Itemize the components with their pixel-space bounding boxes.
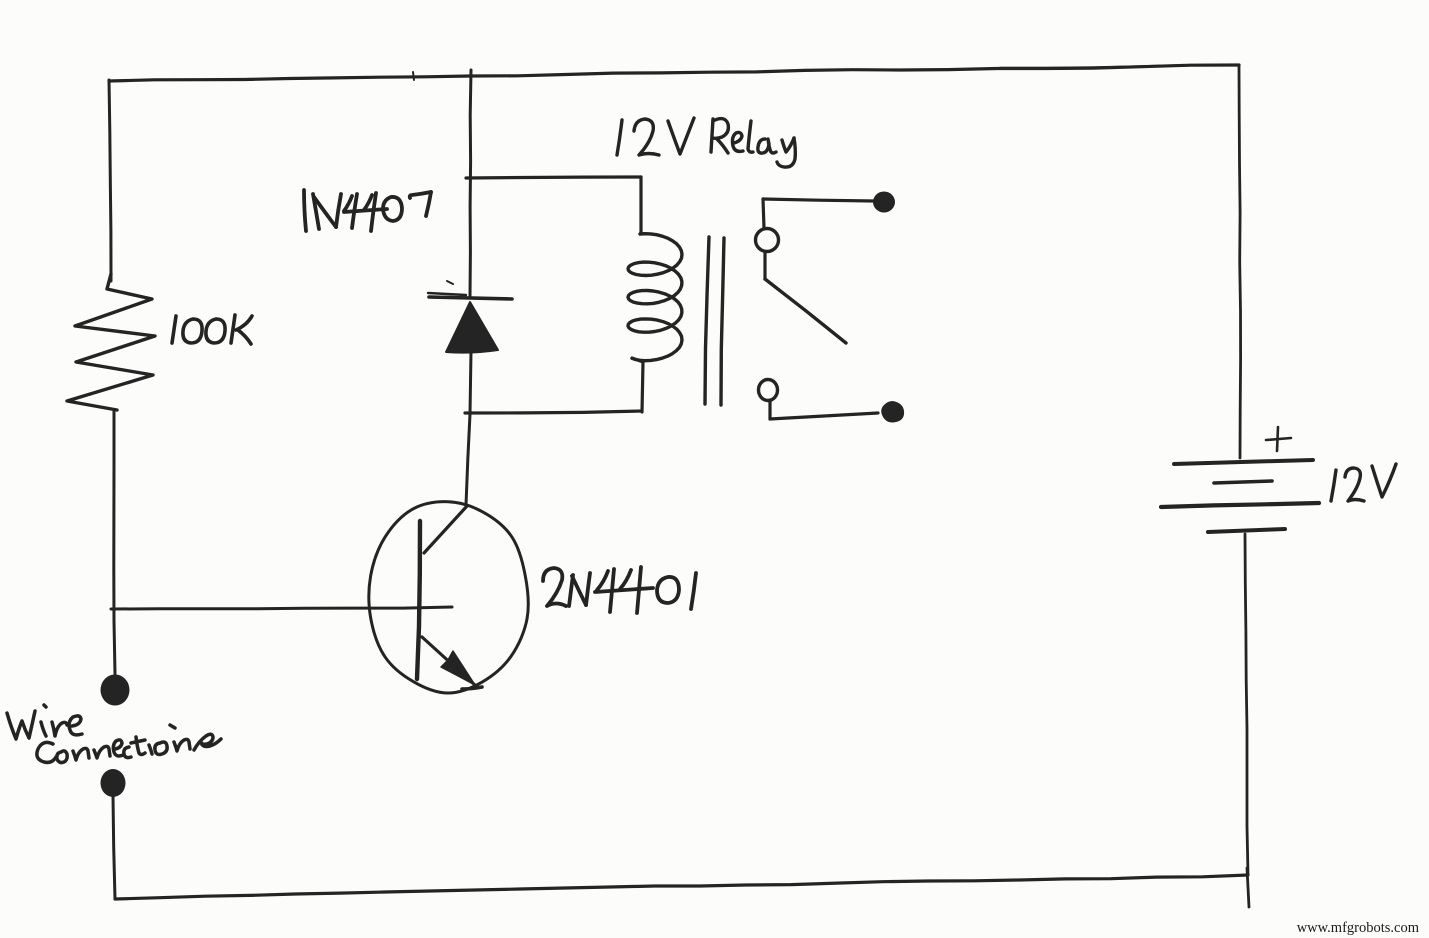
svg-text:www.mfgrobots.com: www.mfgrobots.com xyxy=(1297,920,1420,936)
